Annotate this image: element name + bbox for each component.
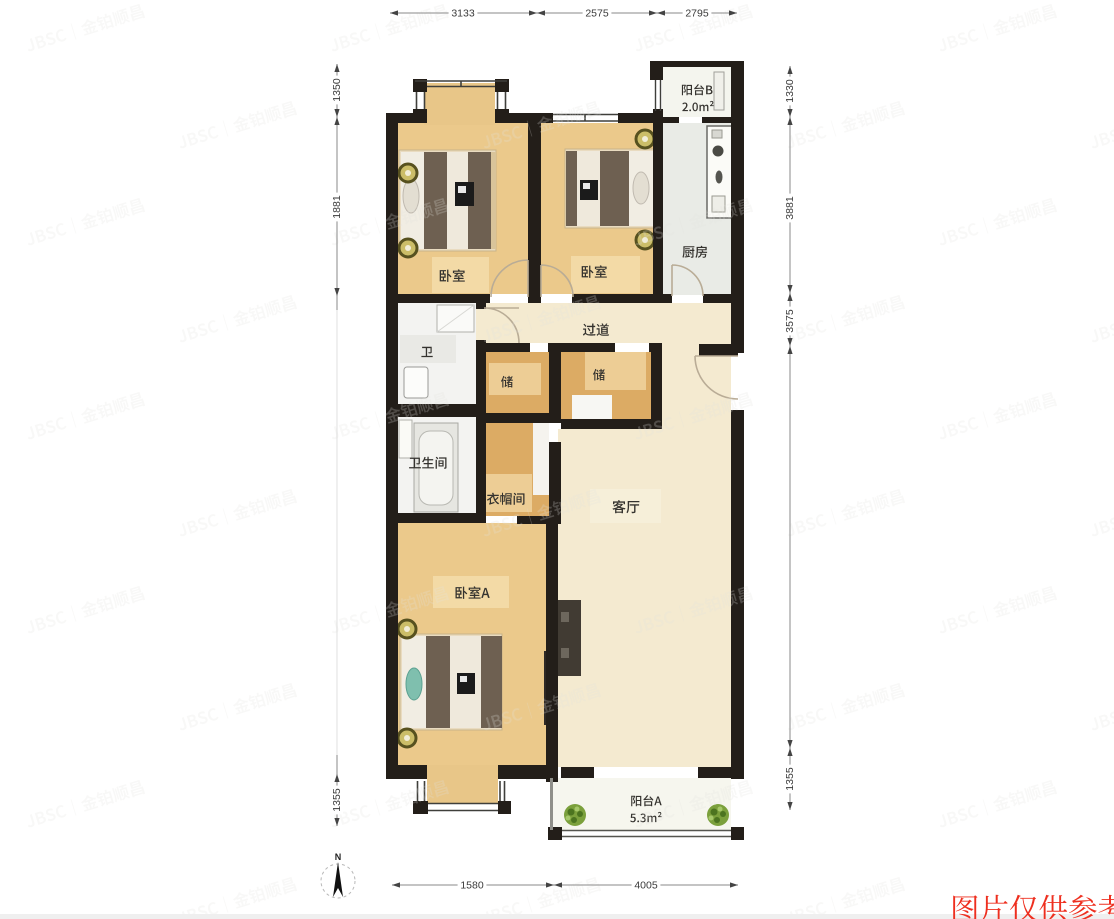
svg-text:1881: 1881 [331, 195, 343, 219]
svg-text:1350: 1350 [331, 78, 343, 102]
svg-text:3881: 3881 [784, 196, 796, 220]
svg-text:2795: 2795 [685, 8, 709, 20]
svg-text:3133: 3133 [451, 8, 475, 20]
svg-text:1580: 1580 [460, 880, 484, 892]
svg-text:N: N [335, 852, 342, 862]
svg-text:1355: 1355 [331, 788, 343, 812]
svg-text:3575: 3575 [784, 309, 796, 333]
svg-text:2575: 2575 [585, 8, 609, 20]
svg-text:1330: 1330 [784, 79, 796, 103]
svg-text:1355: 1355 [784, 767, 796, 791]
svg-text:4005: 4005 [634, 880, 658, 892]
